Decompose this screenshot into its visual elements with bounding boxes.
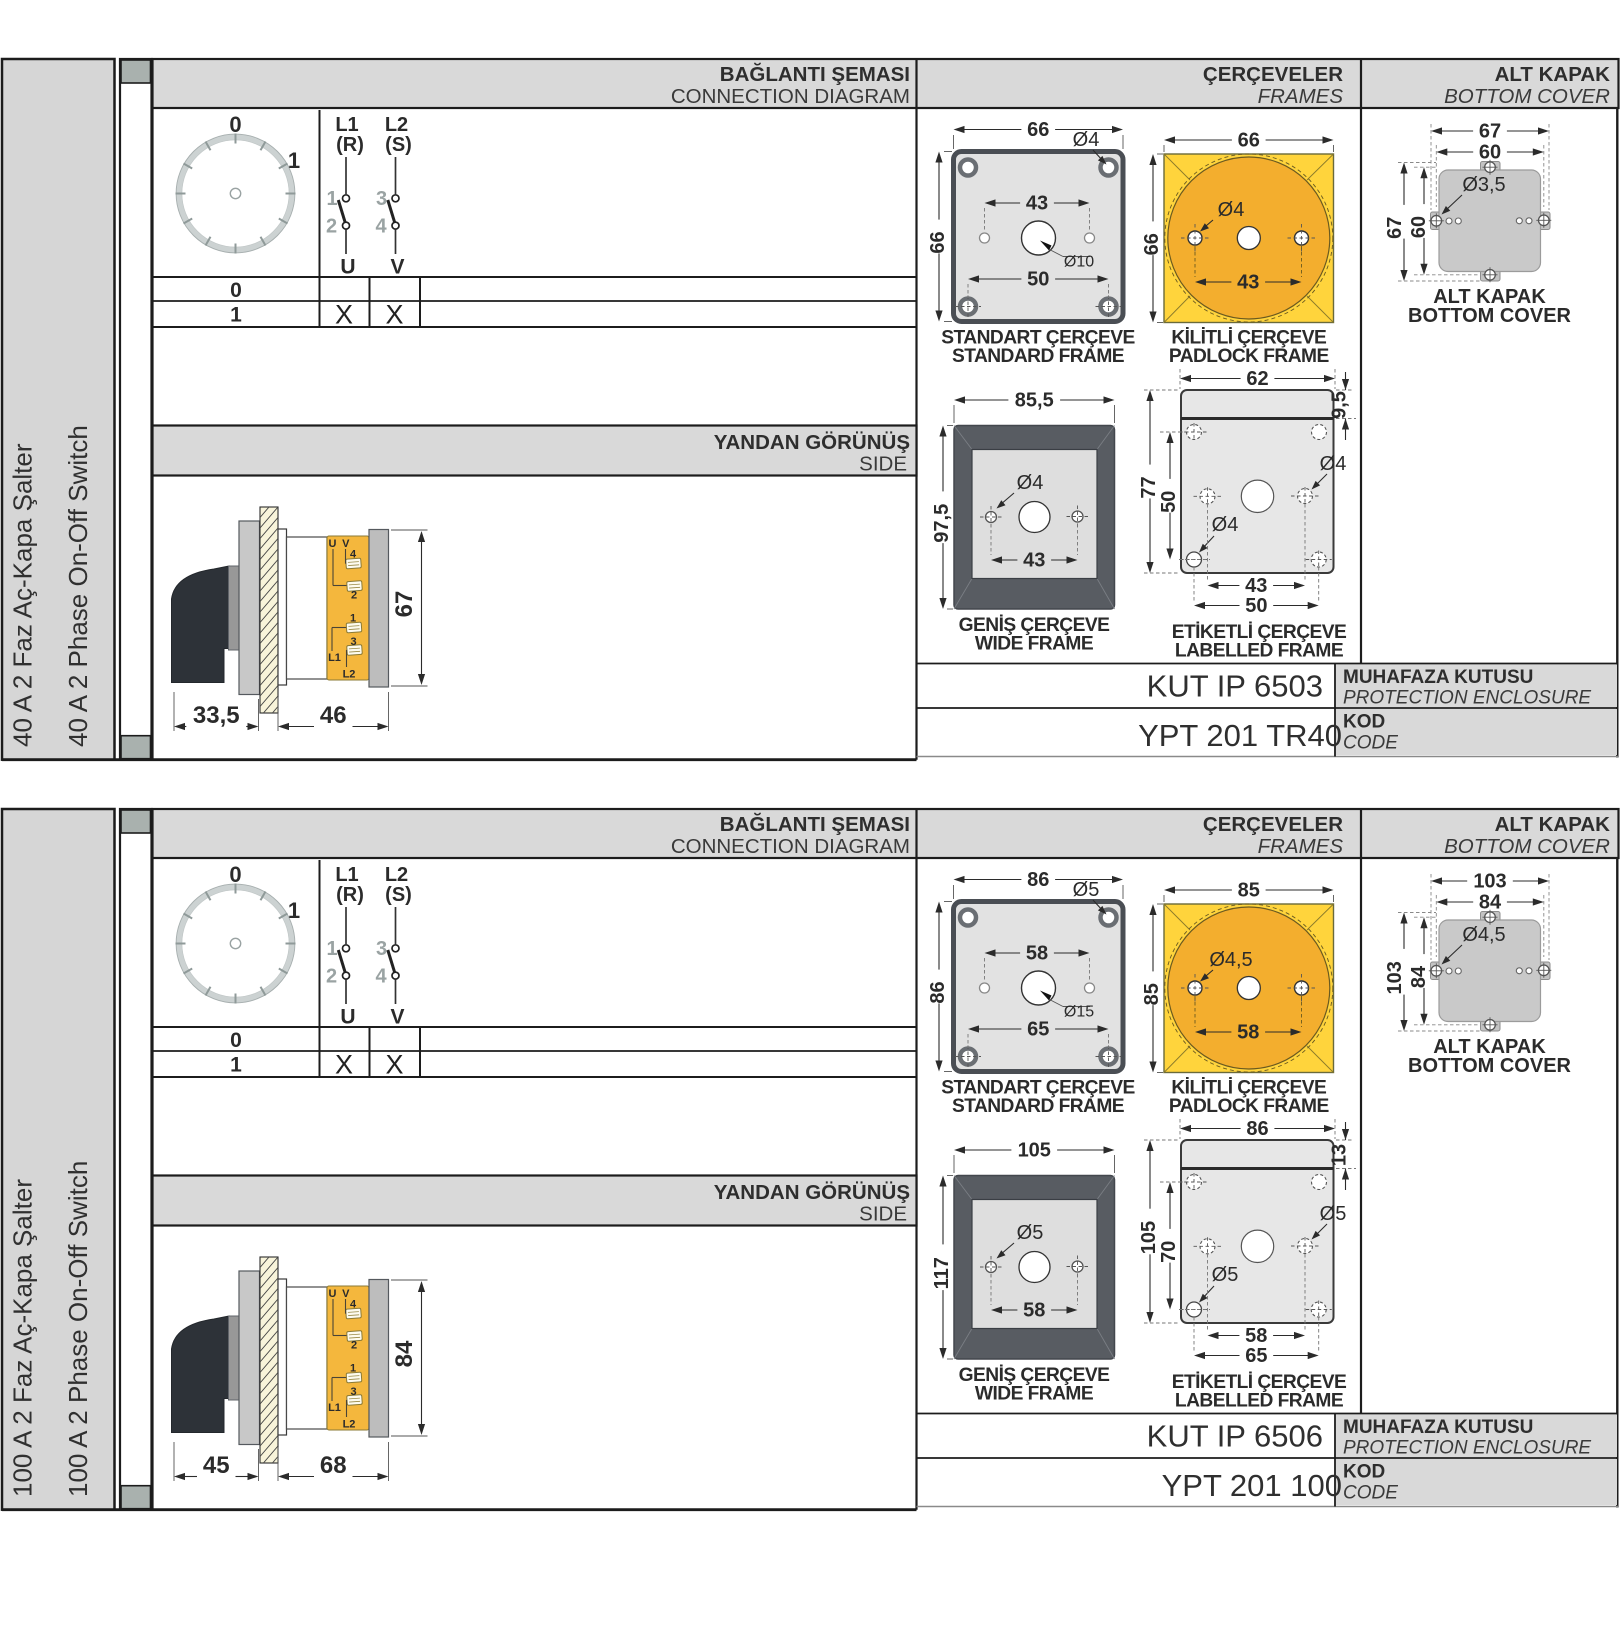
svg-text:ALT KAPAK: ALT KAPAK: [1495, 813, 1611, 836]
svg-text:V: V: [342, 538, 350, 550]
svg-text:103: 103: [1384, 961, 1406, 994]
svg-text:L2: L2: [343, 669, 356, 681]
svg-text:Ø5: Ø5: [1320, 1203, 1347, 1225]
svg-text:100 A 2 Faz Aç-Kapa Şalter: 100 A 2 Faz Aç-Kapa Şalter: [8, 1179, 38, 1497]
svg-text:YANDAN GÖRÜNÜŞ: YANDAN GÖRÜNÜŞ: [714, 431, 910, 454]
svg-text:3: 3: [351, 636, 357, 648]
svg-text:117: 117: [931, 1257, 953, 1289]
svg-text:L1: L1: [328, 652, 341, 664]
svg-text:MUHAFAZA KUTUSU: MUHAFAZA KUTUSU: [1343, 1417, 1533, 1438]
svg-text:FRAMES: FRAMES: [1258, 835, 1344, 858]
svg-text:105: 105: [1138, 1221, 1160, 1254]
svg-text:L1: L1: [335, 114, 358, 136]
svg-text:60: 60: [1408, 216, 1430, 238]
svg-text:L2: L2: [385, 864, 408, 886]
svg-text:ÇERÇEVELER: ÇERÇEVELER: [1203, 813, 1343, 836]
svg-text:3: 3: [351, 1386, 357, 1398]
svg-text:STANDARD FRAME: STANDARD FRAME: [952, 1096, 1125, 1117]
svg-text:Ø5: Ø5: [1073, 879, 1100, 901]
svg-text:2: 2: [326, 216, 337, 238]
svg-text:50: 50: [1158, 491, 1180, 513]
svg-text:Ø4: Ø4: [1212, 514, 1239, 536]
svg-text:KUT IP 6503: KUT IP 6503: [1147, 669, 1323, 704]
svg-text:YPT 201 100: YPT 201 100: [1162, 1468, 1342, 1503]
svg-text:MUHAFAZA KUTUSU: MUHAFAZA KUTUSU: [1343, 667, 1533, 688]
svg-text:2: 2: [326, 966, 337, 988]
svg-text:86: 86: [927, 981, 949, 1003]
svg-text:67: 67: [1384, 217, 1406, 239]
svg-text:1: 1: [288, 898, 300, 923]
svg-text:BOTTOM COVER: BOTTOM COVER: [1444, 835, 1610, 858]
svg-text:65: 65: [1245, 1345, 1267, 1367]
svg-text:BAĞLANTI ŞEMASI: BAĞLANTI ŞEMASI: [720, 812, 910, 836]
svg-text:Ø5: Ø5: [1212, 1264, 1239, 1286]
svg-text:3: 3: [376, 938, 387, 960]
svg-text:100 A 2 Phase On-Off Switch: 100 A 2 Phase On-Off Switch: [63, 1161, 93, 1497]
svg-text:66: 66: [1141, 233, 1163, 255]
svg-text:43: 43: [1245, 575, 1267, 597]
svg-text:9,5: 9,5: [1329, 391, 1351, 419]
svg-text:85: 85: [1238, 880, 1260, 902]
svg-text:0: 0: [229, 112, 241, 137]
svg-text:62: 62: [1246, 368, 1268, 390]
svg-text:4: 4: [375, 966, 387, 988]
svg-text:103: 103: [1473, 871, 1506, 893]
svg-text:BOTTOM COVER: BOTTOM COVER: [1408, 305, 1572, 327]
svg-text:67: 67: [391, 591, 418, 618]
svg-text:0: 0: [230, 1029, 242, 1052]
svg-text:PADLOCK FRAME: PADLOCK FRAME: [1169, 1096, 1330, 1117]
svg-text:WIDE FRAME: WIDE FRAME: [975, 1384, 1094, 1405]
svg-text:CONNECTION DIAGRAM: CONNECTION DIAGRAM: [671, 835, 910, 858]
svg-text:58: 58: [1245, 1325, 1267, 1347]
svg-text:KUT IP 6506: KUT IP 6506: [1147, 1419, 1323, 1454]
svg-text:Ø10: Ø10: [1064, 254, 1094, 271]
svg-text:Ø3,5: Ø3,5: [1462, 174, 1505, 196]
svg-text:40 A 2 Phase On-Off Switch: 40 A 2 Phase On-Off Switch: [63, 425, 93, 747]
svg-text:84: 84: [391, 1340, 418, 1367]
svg-text:YPT 201 TR40: YPT 201 TR40: [1138, 718, 1342, 753]
svg-text:58: 58: [1023, 1300, 1045, 1322]
svg-text:3: 3: [376, 188, 387, 210]
svg-text:CODE: CODE: [1343, 1483, 1398, 1504]
svg-text:L1: L1: [335, 864, 358, 886]
svg-text:13: 13: [1329, 1144, 1351, 1166]
svg-text:U: U: [329, 538, 337, 550]
svg-text:65: 65: [1027, 1019, 1049, 1041]
svg-text:(S): (S): [385, 884, 412, 906]
svg-text:CONNECTION DIAGRAM: CONNECTION DIAGRAM: [671, 85, 910, 108]
svg-text:L1: L1: [328, 1402, 341, 1414]
svg-text:1: 1: [230, 1054, 242, 1077]
svg-text:V: V: [390, 1006, 404, 1029]
svg-text:84: 84: [1479, 892, 1502, 914]
svg-text:68: 68: [320, 1452, 347, 1479]
svg-text:KOD: KOD: [1343, 1462, 1385, 1483]
svg-text:46: 46: [320, 702, 347, 729]
svg-text:Ø15: Ø15: [1064, 1004, 1094, 1021]
svg-text:50: 50: [1027, 269, 1049, 291]
svg-text:X: X: [335, 300, 353, 330]
svg-text:60: 60: [1479, 142, 1501, 164]
svg-text:Ø4: Ø4: [1073, 129, 1100, 151]
svg-text:PROTECTION ENCLOSURE: PROTECTION ENCLOSURE: [1343, 1438, 1591, 1459]
svg-text:(R): (R): [336, 134, 364, 156]
svg-text:4: 4: [375, 216, 387, 238]
svg-text:BOTTOM COVER: BOTTOM COVER: [1444, 85, 1610, 108]
svg-text:66: 66: [927, 231, 949, 253]
svg-text:4: 4: [350, 549, 357, 561]
svg-text:1: 1: [230, 304, 242, 327]
svg-text:U: U: [340, 1006, 355, 1029]
svg-text:U: U: [340, 256, 355, 279]
svg-text:77: 77: [1138, 476, 1160, 498]
svg-text:(S): (S): [385, 134, 412, 156]
svg-text:Ø4,5: Ø4,5: [1209, 949, 1252, 971]
svg-text:33,5: 33,5: [193, 702, 240, 729]
svg-text:1: 1: [288, 148, 300, 173]
svg-text:X: X: [385, 1050, 403, 1080]
svg-text:X: X: [335, 1050, 353, 1080]
svg-text:SIDE: SIDE: [859, 453, 907, 476]
svg-text:1: 1: [350, 613, 356, 625]
svg-text:58: 58: [1237, 1022, 1259, 1044]
svg-text:Ø4: Ø4: [1218, 199, 1245, 221]
svg-text:X: X: [385, 300, 403, 330]
svg-text:66: 66: [1027, 119, 1049, 141]
svg-text:L2: L2: [343, 1419, 356, 1431]
svg-text:STANDARD FRAME: STANDARD FRAME: [952, 346, 1125, 367]
svg-text:Ø4: Ø4: [1017, 472, 1044, 494]
svg-text:BAĞLANTI ŞEMASI: BAĞLANTI ŞEMASI: [720, 62, 910, 86]
svg-text:45: 45: [203, 1452, 230, 1479]
svg-text:84: 84: [1408, 965, 1430, 988]
svg-text:U: U: [329, 1288, 337, 1300]
svg-text:70: 70: [1158, 1241, 1180, 1263]
svg-text:WIDE FRAME: WIDE FRAME: [975, 634, 1094, 655]
svg-text:YANDAN GÖRÜNÜŞ: YANDAN GÖRÜNÜŞ: [714, 1181, 910, 1204]
svg-text:BOTTOM COVER: BOTTOM COVER: [1408, 1055, 1572, 1077]
svg-text:LABELLED FRAME: LABELLED FRAME: [1175, 1391, 1344, 1412]
svg-text:4: 4: [350, 1299, 357, 1311]
svg-text:40 A 2 Faz Aç-Kapa Şalter: 40 A 2 Faz Aç-Kapa Şalter: [8, 443, 38, 747]
svg-text:(R): (R): [336, 884, 364, 906]
svg-text:LABELLED FRAME: LABELLED FRAME: [1175, 641, 1344, 662]
svg-text:CODE: CODE: [1343, 733, 1398, 754]
svg-text:1: 1: [326, 188, 337, 210]
svg-text:ALT KAPAK: ALT KAPAK: [1495, 63, 1611, 86]
svg-text:50: 50: [1245, 595, 1267, 617]
svg-text:Ø4: Ø4: [1320, 453, 1347, 475]
svg-text:V: V: [342, 1288, 350, 1300]
svg-text:SIDE: SIDE: [859, 1203, 907, 1226]
svg-text:86: 86: [1246, 1118, 1268, 1140]
svg-text:43: 43: [1026, 193, 1048, 215]
svg-text:0: 0: [229, 862, 241, 887]
svg-text:43: 43: [1023, 550, 1045, 572]
svg-text:Ø4,5: Ø4,5: [1462, 924, 1505, 946]
svg-text:2: 2: [351, 1340, 357, 1352]
svg-text:PADLOCK FRAME: PADLOCK FRAME: [1169, 346, 1330, 367]
svg-text:86: 86: [1027, 869, 1049, 891]
svg-text:105: 105: [1018, 1140, 1051, 1162]
svg-text:FRAMES: FRAMES: [1258, 85, 1344, 108]
svg-text:97,5: 97,5: [931, 504, 953, 543]
svg-text:V: V: [390, 256, 404, 279]
svg-text:Ø5: Ø5: [1017, 1222, 1044, 1244]
svg-text:1: 1: [350, 1363, 356, 1375]
svg-text:0: 0: [230, 279, 242, 302]
svg-text:ÇERÇEVELER: ÇERÇEVELER: [1203, 63, 1343, 86]
svg-text:43: 43: [1237, 272, 1259, 294]
svg-text:PROTECTION ENCLOSURE: PROTECTION ENCLOSURE: [1343, 688, 1591, 709]
svg-text:2: 2: [351, 590, 357, 602]
svg-text:1: 1: [326, 938, 337, 960]
svg-text:85: 85: [1141, 983, 1163, 1005]
svg-text:85,5: 85,5: [1015, 390, 1054, 412]
svg-text:67: 67: [1479, 121, 1501, 143]
svg-text:58: 58: [1026, 943, 1048, 965]
svg-text:KOD: KOD: [1343, 712, 1385, 733]
svg-text:66: 66: [1238, 130, 1260, 152]
svg-text:L2: L2: [385, 114, 408, 136]
